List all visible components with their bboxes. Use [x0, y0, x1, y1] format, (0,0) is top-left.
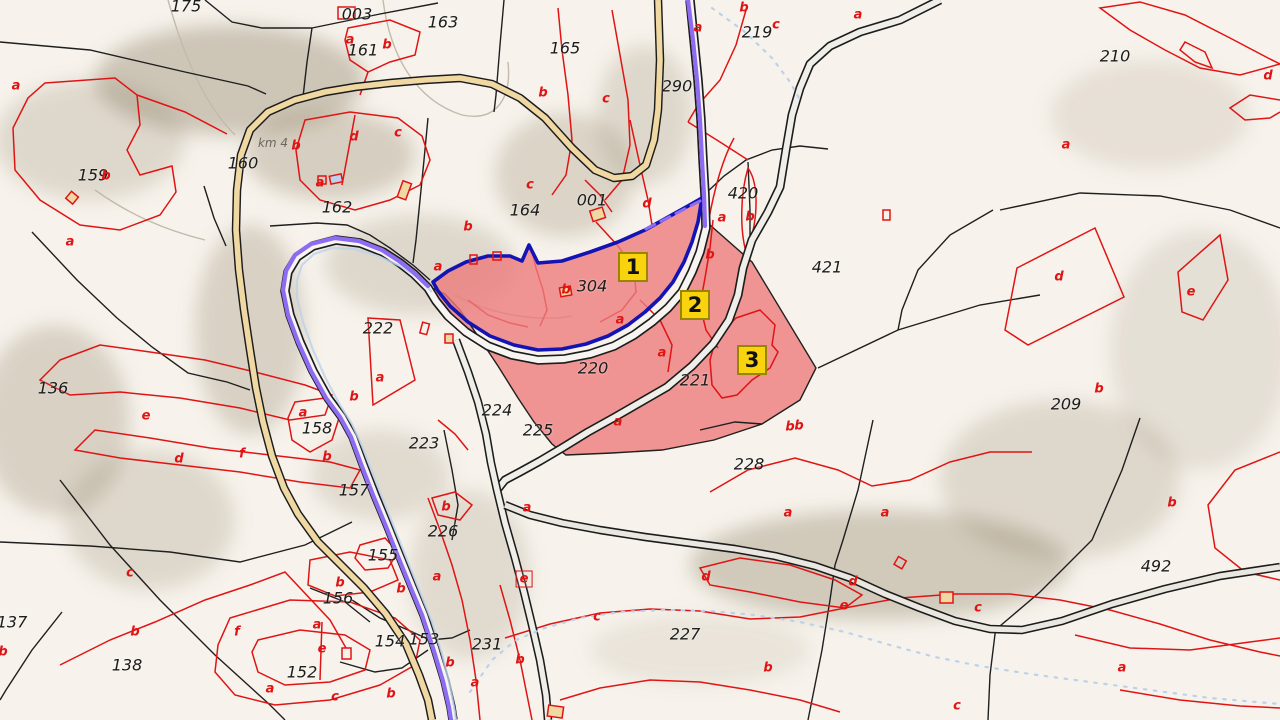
map-marker-3[interactable]: 3: [737, 345, 767, 375]
cadastral-map[interactable]: 1750031631611652902192101591601621640014…: [0, 0, 1280, 720]
map-marker-1[interactable]: 1: [618, 252, 648, 282]
map-marker-2[interactable]: 2: [680, 290, 710, 320]
map-canvas[interactable]: [0, 0, 1280, 720]
